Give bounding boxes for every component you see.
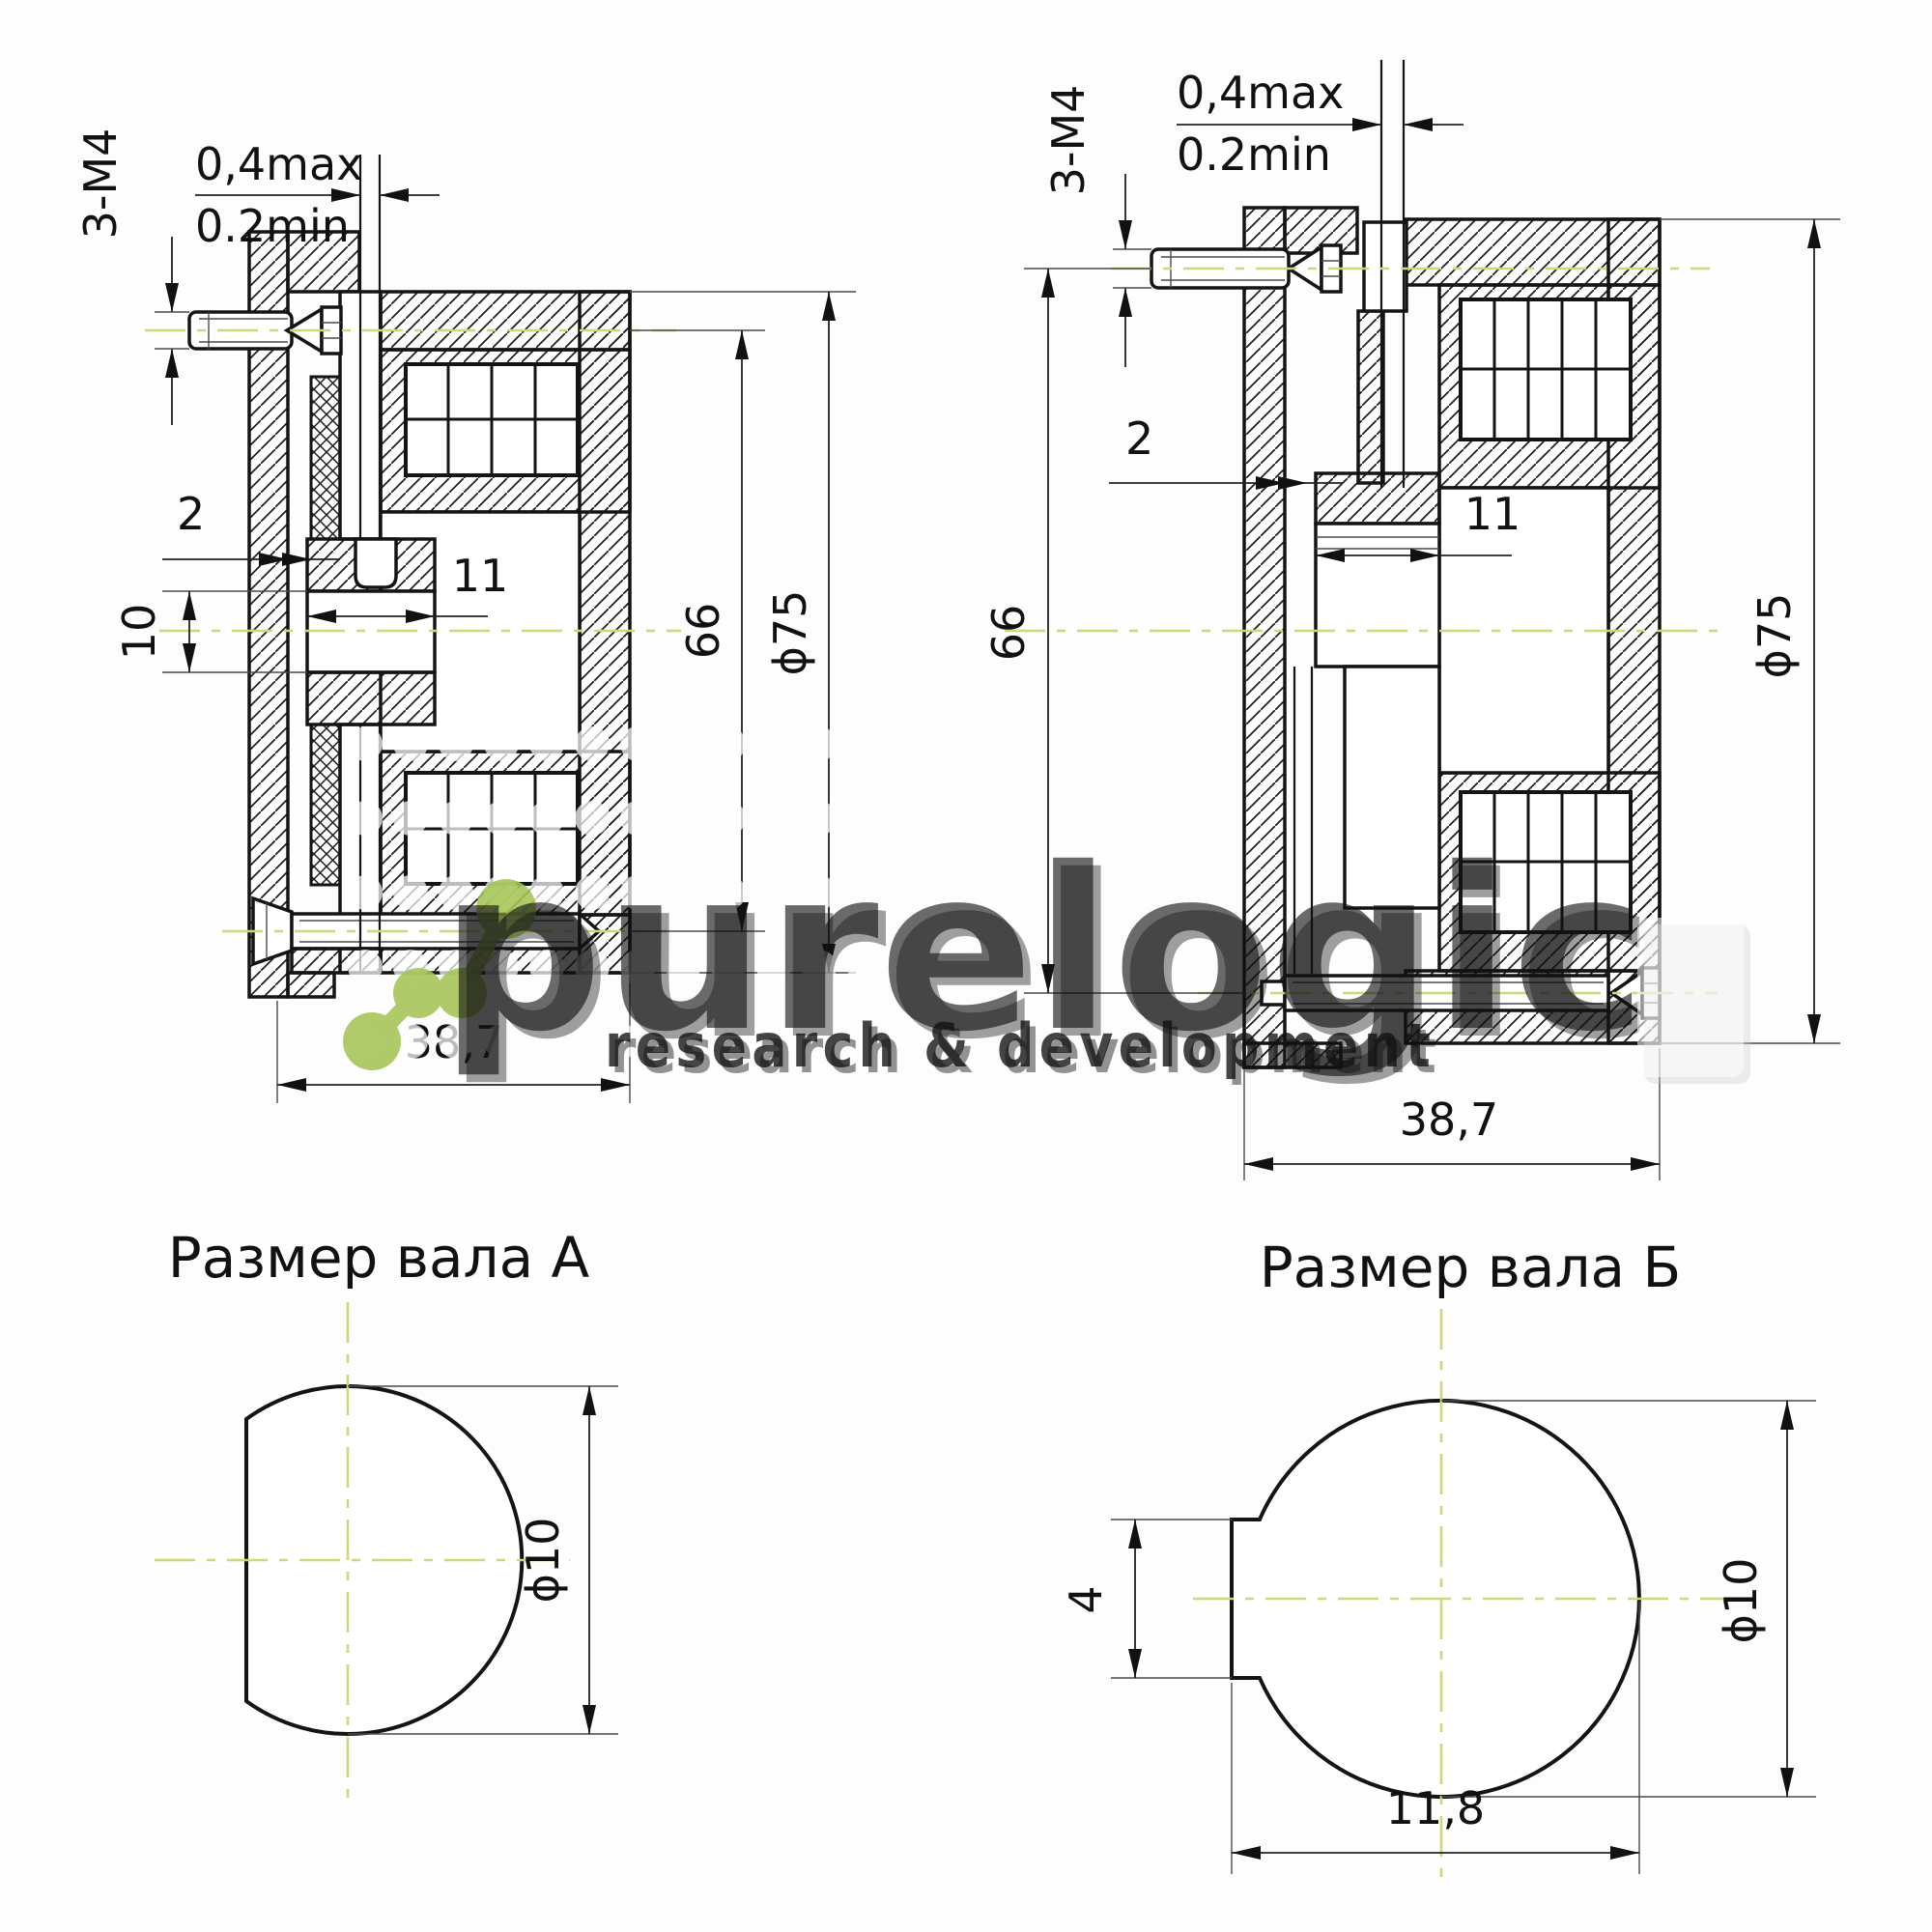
dim-bolt-thread-a: 3-M4 bbox=[74, 128, 127, 240]
dim-hub-length-b: 11 bbox=[1464, 488, 1521, 540]
technical-drawing-page: 3-M4 0,4max 0.2min 2 10 bbox=[0, 0, 1932, 1932]
shaft-b-title: Размер вала Б bbox=[1260, 1235, 1682, 1300]
shaft-b-dia: ϕ10 bbox=[1715, 1558, 1767, 1644]
dim-gap-min-a: 0.2min bbox=[195, 200, 350, 252]
shaft-view-a: Размер вала А ϕ10 bbox=[155, 1225, 618, 1799]
shaft-view-b: Размер вала Б 4 ϕ10 11,8 bbox=[1060, 1235, 1816, 1884]
shaft-a-dia: ϕ10 bbox=[517, 1518, 569, 1604]
shaft-b-flat: 4 bbox=[1060, 1585, 1112, 1613]
watermark-tagline-text: research & development bbox=[605, 1010, 1435, 1081]
dim-length-b: 38,7 bbox=[1400, 1094, 1498, 1146]
dim-outer-dia-a: ϕ75 bbox=[764, 590, 816, 676]
dim-outer-dia-b: ϕ75 bbox=[1748, 593, 1801, 679]
dim-bolt-thread-b: 3-M4 bbox=[1042, 85, 1094, 196]
dim-mount-circle-b: 66 bbox=[982, 605, 1035, 662]
coil-window-top bbox=[406, 364, 578, 475]
brake-drawing-svg: 3-M4 0,4max 0.2min 2 10 bbox=[0, 0, 1932, 1932]
dim-mount-circle-a: 66 bbox=[677, 603, 729, 660]
dim-gap-min-b: 0.2min bbox=[1177, 128, 1331, 181]
hub-bore-slot bbox=[355, 539, 396, 587]
dim-bore-a: 10 bbox=[113, 604, 165, 661]
dim-hub-length-a: 11 bbox=[452, 550, 509, 602]
watermark-logo-box bbox=[1637, 918, 1744, 1077]
shaft-a-title: Размер вала А bbox=[168, 1225, 590, 1291]
shaft-b-length: 11,8 bbox=[1386, 1782, 1485, 1834]
watermark-tagline: research & development research & develo… bbox=[605, 1010, 1441, 1087]
dim-gap-max-b: 0,4max bbox=[1177, 67, 1344, 119]
dim-offset-b: 2 bbox=[1125, 412, 1153, 465]
dim-offset-a: 2 bbox=[177, 488, 205, 540]
coil-window-top-b bbox=[1461, 299, 1631, 440]
dim-gap-max-a: 0,4max bbox=[195, 138, 362, 190]
